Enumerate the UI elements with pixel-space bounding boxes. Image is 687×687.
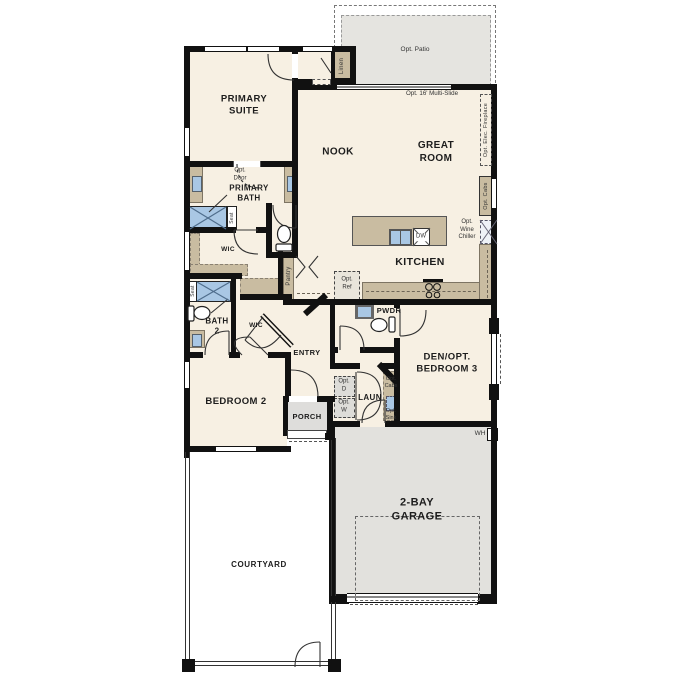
vanity-sink-left [192, 176, 202, 192]
bath2-shower [196, 281, 231, 302]
wall [229, 352, 240, 358]
fence-post [182, 659, 195, 672]
window [491, 334, 497, 384]
room-label-entry: ENTRY [293, 348, 320, 358]
room-label-bath-2: BATH 2 [205, 317, 228, 338]
room-label-garage: 2-BAY GARAGE [392, 496, 443, 525]
label-multi-slide: Opt. 16' Multi-Slide [406, 90, 458, 98]
courtyard-fence-right-lower [331, 602, 336, 662]
counter-dash-line-left [297, 293, 330, 294]
room-label-nook: NOOK [322, 146, 354, 159]
garage-opt-dash-rect [355, 516, 480, 601]
fence-post [325, 433, 333, 440]
wall [489, 384, 499, 400]
room-label-courtyard: COURTYARD [231, 560, 287, 570]
window [184, 362, 190, 388]
hall-dashed-opening [312, 79, 331, 85]
label-seat-bath2: Seat [190, 285, 196, 297]
wall [285, 352, 291, 402]
label-opt-cabs-kitchen: Opt. Cabs [483, 182, 489, 209]
room-label-primary-bath: PRIMARY BATH [229, 184, 268, 205]
multi-slide-door [337, 84, 451, 90]
label-wine-chiller: Opt. Wine Chiller [458, 219, 475, 242]
opt-door-opening [233, 161, 261, 167]
room-label-primary-suite: PRIMARY SUITE [221, 94, 267, 119]
wall [329, 421, 497, 427]
floor-plan: Opt. Patio [0, 0, 687, 687]
garage-door-dash [350, 604, 478, 605]
room-label-bedroom-2: BEDROOM 2 [205, 396, 266, 408]
wall [489, 318, 499, 334]
porch-step [287, 430, 327, 439]
label-opt-w: Opt. W [338, 400, 349, 415]
room-label-pwdr: PWDR [377, 306, 402, 316]
fence-post [328, 659, 341, 672]
island-sink-left [391, 231, 400, 244]
label-elec-fireplace: Opt. Elec. Fireplace [483, 103, 489, 157]
label-opt-d: Opt. D [338, 379, 349, 394]
opt-patio-label: Opt. Patio [401, 46, 430, 54]
wall [240, 294, 292, 300]
counter-dash-line [366, 291, 476, 292]
room-label-wic-primary: WIC [221, 246, 235, 254]
wall [184, 352, 203, 358]
doorway [292, 54, 298, 78]
front-doorway [289, 396, 317, 402]
room-label-den: DEN/OPT. BEDROOM 3 [416, 352, 477, 377]
bath2-sink [192, 334, 202, 347]
pwdr-sink [358, 307, 371, 317]
wall [283, 299, 497, 305]
room-label-kitchen: KITCHEN [395, 256, 444, 270]
label-wh: WH [475, 430, 486, 438]
counter-dash-line-v [487, 250, 488, 298]
room-label-laundry: LAUN [358, 393, 382, 403]
courtyard-fence-right-upper [331, 438, 336, 596]
label-linen: Linen [339, 58, 345, 74]
porch-step-dash [289, 441, 327, 442]
label-dw: DW [416, 233, 427, 241]
wall [491, 421, 497, 603]
label-opt-ref: Opt. Ref [341, 277, 352, 292]
window [184, 128, 190, 156]
wall [184, 227, 236, 233]
wall [256, 227, 272, 233]
label-seat-primary: Seat [229, 212, 235, 224]
wall [278, 249, 283, 300]
courtyard-fence-left [185, 452, 190, 662]
window [303, 46, 332, 52]
window [491, 179, 497, 208]
room-label-porch: PORCH [292, 412, 321, 422]
label-opt-door: Opt. Door [233, 168, 246, 183]
island-sink-right [401, 231, 410, 244]
wall [231, 277, 236, 352]
window-exterior-dash [500, 334, 501, 384]
label-opt-sink: Opt. Sink [386, 408, 397, 422]
wall [330, 299, 335, 369]
window [248, 46, 279, 52]
room-label-wic-2: WIC [249, 322, 263, 330]
window [216, 446, 256, 452]
label-pantry: Pantry [286, 266, 292, 285]
doorway [338, 347, 360, 353]
wall [330, 363, 360, 369]
window [205, 46, 246, 52]
cooktop-bar-top [423, 279, 443, 282]
room-label-great-room: GREAT ROOM [418, 139, 454, 165]
wall [477, 594, 497, 604]
window [184, 232, 190, 270]
label-opt-cabs-laundry: Opt. Cabs [385, 376, 398, 390]
doorway [360, 421, 385, 427]
courtyard-fence-bottom [188, 661, 333, 666]
